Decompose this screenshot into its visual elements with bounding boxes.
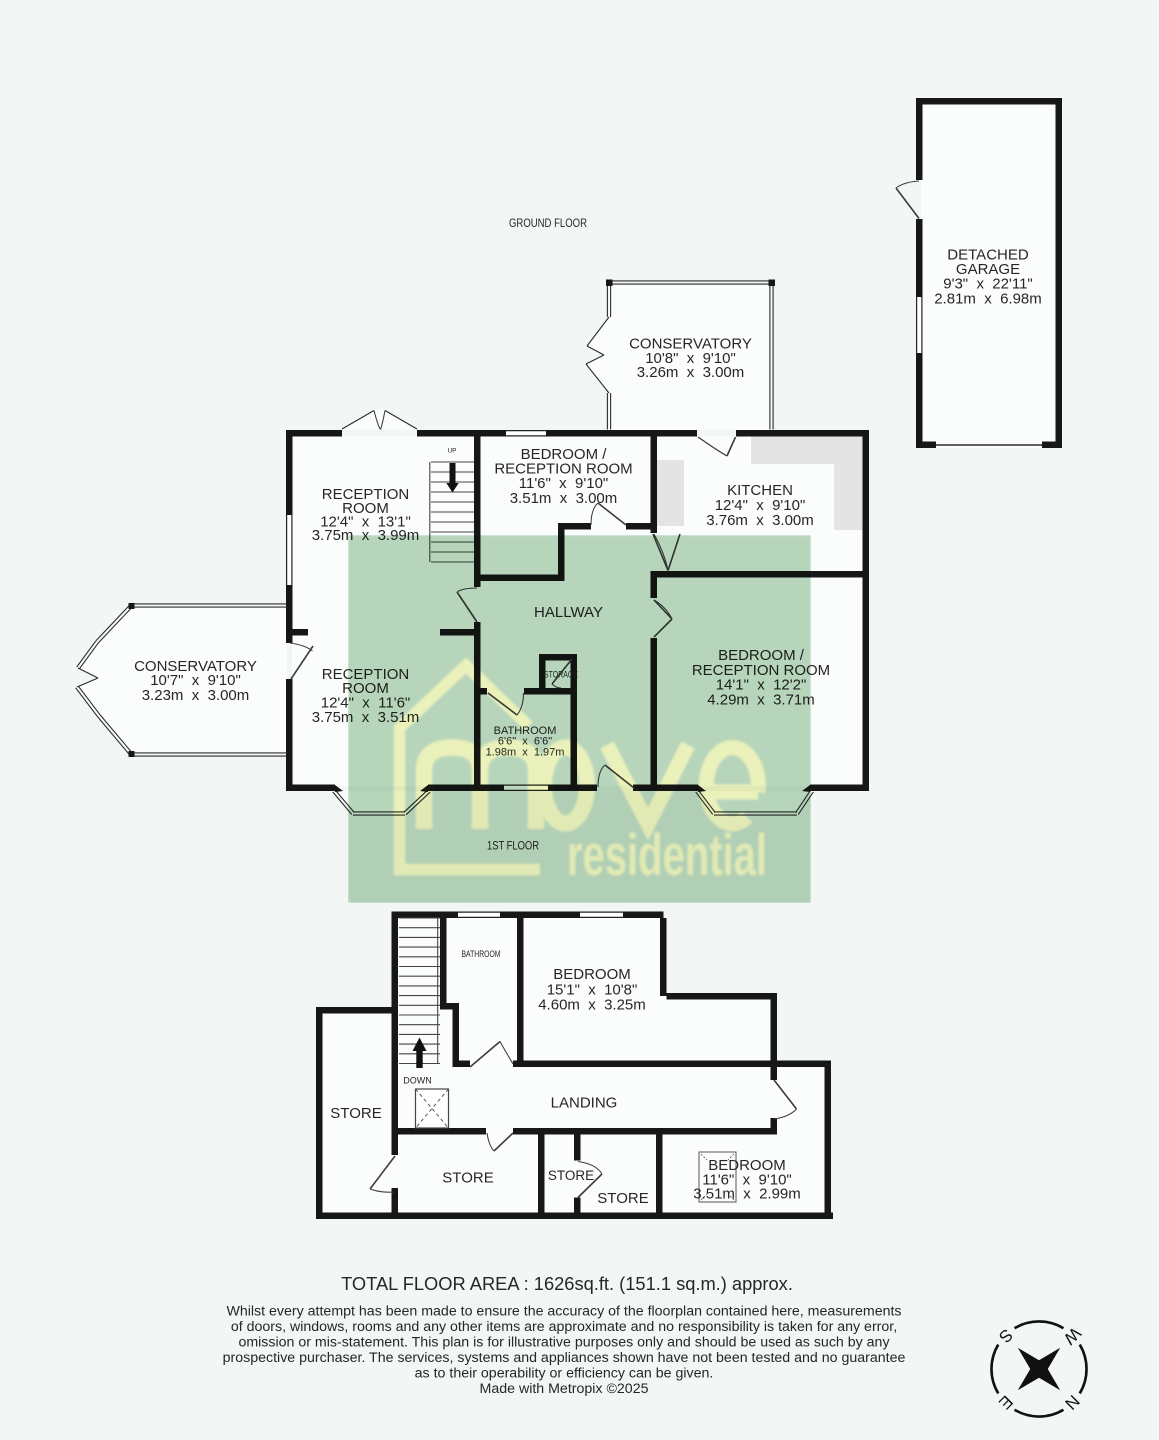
svg-text:LANDING: LANDING [551,1095,618,1112]
svg-text:3.51m x 3.00m: 3.51m x 3.00m [510,490,618,507]
svg-text:STORE: STORE [548,1168,594,1183]
svg-text:prospective purchaser. The ser: prospective purchaser. The services, sys… [223,1350,906,1366]
svg-text:STORE: STORE [442,1170,493,1187]
svg-text:residential: residential [567,823,767,888]
svg-text:4.60m x 3.25m: 4.60m x 3.25m [538,997,646,1014]
svg-text:STORE: STORE [330,1105,381,1122]
svg-text:as to their operability or eff: as to their operability or efficiency ca… [415,1366,714,1382]
svg-text:Whilst every attempt has been: Whilst every attempt has been made to en… [226,1304,901,1320]
svg-text:3.76m x 3.00m: 3.76m x 3.00m [706,512,814,529]
svg-text:BATHROOM: BATHROOM [462,949,501,959]
svg-text:TOTAL FLOOR AREA : 1626sq.ft.: TOTAL FLOOR AREA : 1626sq.ft. (151.1 sq.… [341,1273,793,1294]
svg-text:STORE: STORE [597,1190,648,1207]
svg-text:3.26m x 3.00m: 3.26m x 3.00m [637,364,745,381]
svg-text:UP: UP [447,448,456,455]
svg-text:BEDROOM: BEDROOM [553,966,631,983]
svg-text:of doors, windows, rooms and a: of doors, windows, rooms and any other i… [231,1319,897,1335]
svg-text:GROUND FLOOR: GROUND FLOOR [509,216,587,230]
svg-text:DOWN: DOWN [403,1076,432,1086]
svg-text:2.81m x 6.98m: 2.81m x 6.98m [934,291,1042,308]
svg-text:3.23m x 3.00m: 3.23m x 3.00m [142,687,250,704]
svg-text:3.51m x 2.99m: 3.51m x 2.99m [693,1186,801,1203]
svg-text:Made with Metropix ©2025: Made with Metropix ©2025 [480,1381,649,1397]
svg-text:omission or mis-statement. Thi: omission or mis-statement. This plan is … [238,1335,890,1351]
